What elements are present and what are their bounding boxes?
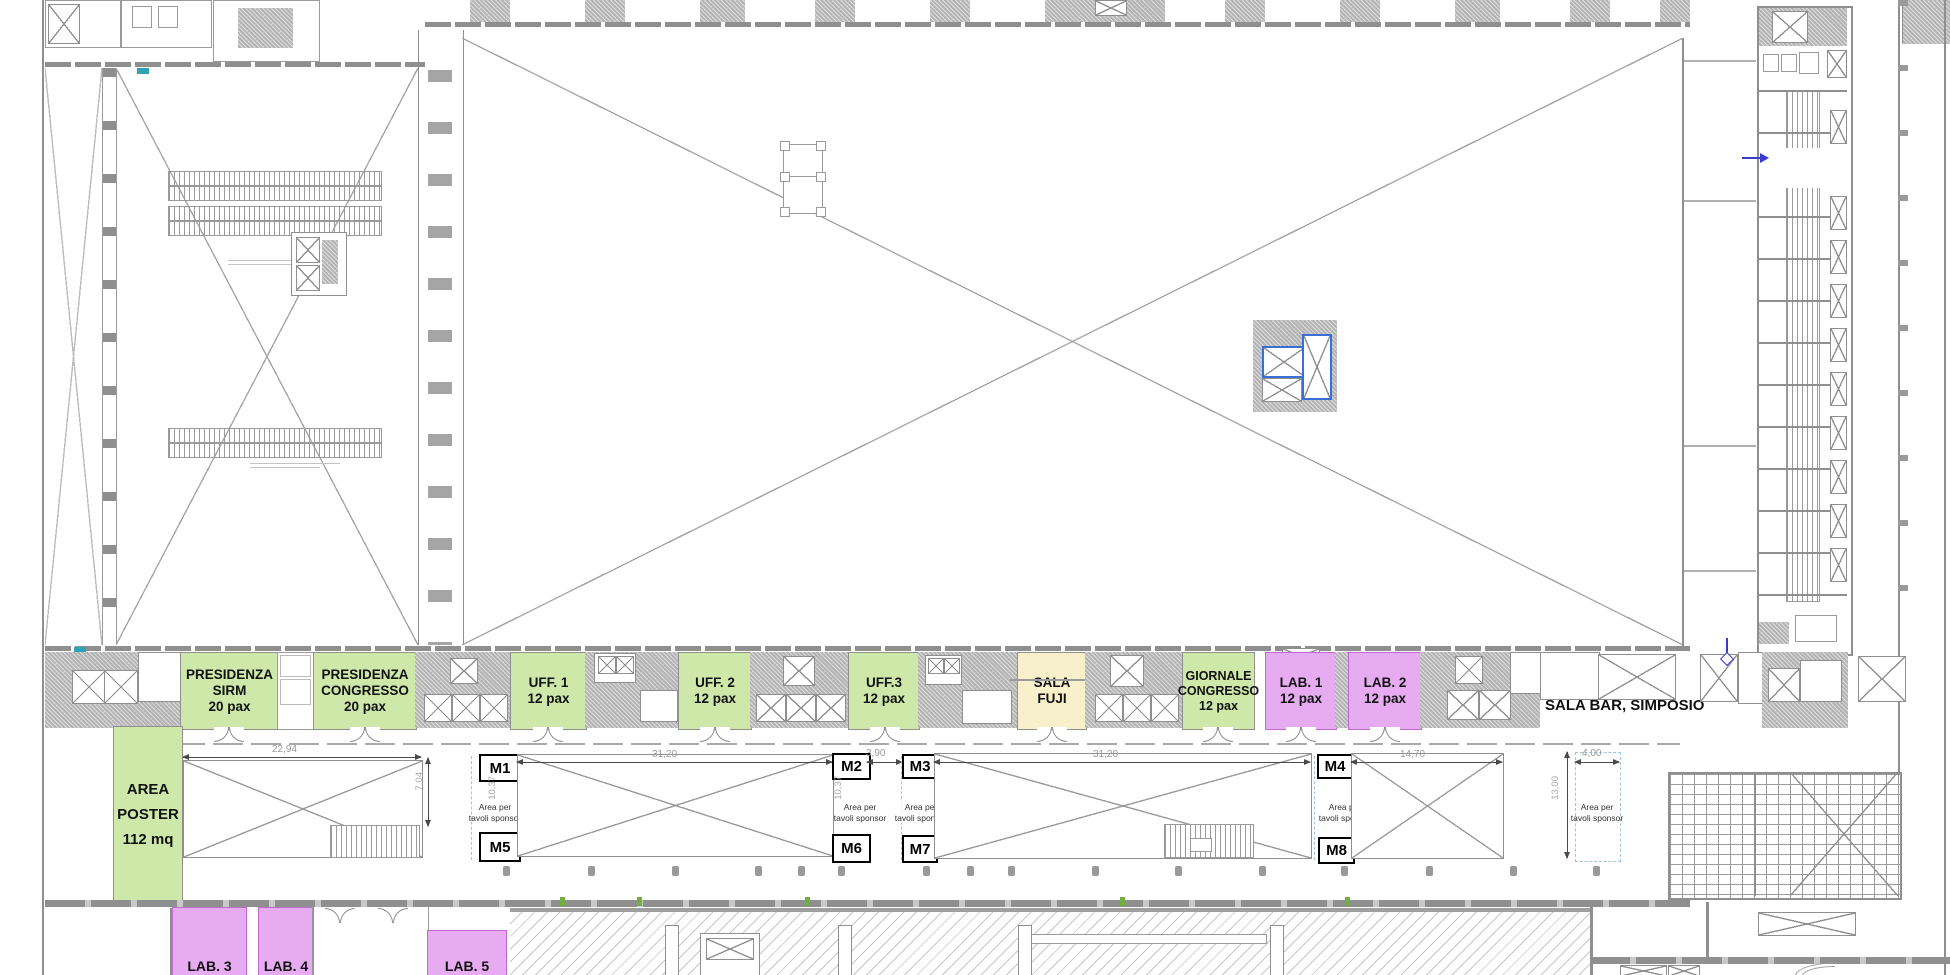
partition xyxy=(1684,570,1756,572)
dim-line xyxy=(1575,762,1619,763)
hatch-pier xyxy=(470,0,510,22)
room-giornale-congresso: GIORNALE CONGRESSO 12 pax xyxy=(1182,652,1255,730)
top-wall-left xyxy=(45,62,425,67)
shaft-xbox xyxy=(1827,50,1847,78)
shaft-xbox xyxy=(1830,460,1847,494)
room-lab-2: LAB. 2 12 pax xyxy=(1348,652,1422,730)
tiny-annotation xyxy=(250,467,320,468)
hatch-pier xyxy=(1660,0,1690,22)
shaft-xbox xyxy=(1830,416,1847,450)
shaft-xbox xyxy=(1095,0,1127,16)
escalator xyxy=(168,206,382,221)
left-outer-wall xyxy=(42,0,44,975)
corridor-wall xyxy=(175,743,1680,745)
central-hall xyxy=(462,38,1683,645)
floor-plan-canvas: PRESIDENZA SIRM 20 pax PRESIDENZA CONGRE… xyxy=(0,0,1950,975)
hatch-pier xyxy=(930,0,970,22)
shaft-xbox xyxy=(1151,694,1179,722)
hatch-pier xyxy=(1335,652,1348,728)
pillar xyxy=(1018,925,1032,975)
partition xyxy=(1684,60,1756,62)
escalator xyxy=(168,171,382,186)
bottom-wall-right xyxy=(1590,957,1950,964)
shaft-xbox xyxy=(756,694,786,722)
shaft-xbox xyxy=(296,265,320,291)
shaft-xbox xyxy=(480,694,508,722)
escalator xyxy=(168,221,382,236)
shaft-xbox xyxy=(1110,655,1144,687)
hatch-pier xyxy=(815,0,855,22)
fixture xyxy=(1799,52,1819,74)
green-tick xyxy=(1345,897,1350,906)
floor-dot xyxy=(503,866,510,876)
strip-room xyxy=(138,652,182,702)
fixture xyxy=(1763,54,1779,72)
dim-label: 22,94 xyxy=(272,744,297,755)
room-uff-1: UFF. 1 12 pax xyxy=(510,652,587,730)
room-uff-3: UFF.3 12 pax xyxy=(848,652,920,730)
fixture xyxy=(1781,54,1797,72)
shaft-xbox xyxy=(1830,504,1847,538)
strip-room xyxy=(1800,660,1842,702)
strip-room xyxy=(962,690,1012,724)
shaft-xbox xyxy=(1858,656,1906,702)
blue-arrow-line xyxy=(1742,157,1760,159)
shaft-xbox xyxy=(1768,668,1800,702)
shaft-xbox xyxy=(104,670,138,704)
dim-line xyxy=(428,758,429,826)
shaft-xbox xyxy=(452,694,480,722)
hatch-pier xyxy=(238,8,293,48)
floor-dot xyxy=(1008,866,1015,876)
column-band xyxy=(102,68,117,645)
shaft-xbox xyxy=(616,656,634,674)
shaft-xbox xyxy=(1598,654,1676,700)
bottom-left-corridor xyxy=(45,908,172,975)
area-poster: AREA POSTER 112 mq xyxy=(113,726,183,904)
shaft-xbox xyxy=(1455,656,1483,684)
strip-room xyxy=(1510,652,1542,694)
dim-line xyxy=(1351,762,1502,763)
selected-shaft-xbox[interactable] xyxy=(1302,334,1332,400)
grid-divider xyxy=(1754,772,1756,896)
floor-dot xyxy=(588,866,595,876)
room-presidenza-sirm: PRESIDENZA SIRM 20 pax xyxy=(180,652,279,730)
tiny-annotation xyxy=(250,463,340,464)
column xyxy=(816,207,826,217)
blue-arrow-icon xyxy=(1760,153,1769,163)
shaft-xbox xyxy=(816,694,846,722)
marker-m6: M6 xyxy=(832,834,871,863)
floor-dot xyxy=(967,866,974,876)
dim-label: 7,04 xyxy=(414,772,425,791)
hatch-pier xyxy=(1225,0,1265,22)
shaft-xbox xyxy=(1830,110,1847,144)
dim-line xyxy=(517,762,832,763)
floor-dot xyxy=(923,866,930,876)
expo-rect-2 xyxy=(517,754,834,857)
floor-dot xyxy=(1259,866,1266,876)
shaft-xbox xyxy=(1447,690,1479,720)
double-door xyxy=(700,728,730,742)
marker-m8: M8 xyxy=(1318,837,1355,864)
dim-label: 13,00 xyxy=(1550,776,1561,800)
shaft-xbox xyxy=(1095,694,1123,722)
shaft-xbox xyxy=(424,694,452,722)
shaft-xbox xyxy=(296,237,320,263)
room-uff-2: UFF. 2 12 pax xyxy=(678,652,752,730)
double-door xyxy=(350,728,380,742)
column xyxy=(816,172,826,182)
hatch-pier xyxy=(700,0,745,22)
column xyxy=(780,207,790,217)
strip-top-wall xyxy=(45,646,1690,651)
marker-m1: M1 xyxy=(479,754,521,782)
green-tick xyxy=(560,897,565,906)
room-sala-fuji: SALA FUJI xyxy=(1017,652,1087,730)
marker-m7: M7 xyxy=(902,835,938,863)
dim-label: 31,20 xyxy=(652,749,677,760)
floor-dot xyxy=(1175,866,1182,876)
partition-bar xyxy=(1030,934,1267,944)
floor-dot xyxy=(1593,866,1600,876)
strip-room xyxy=(1540,652,1600,700)
column xyxy=(780,172,790,182)
double-door xyxy=(325,908,355,922)
room-lab-5: LAB. 5 xyxy=(427,930,507,975)
bottom-room xyxy=(1795,615,1837,642)
bottom-wall xyxy=(45,900,1690,907)
column xyxy=(780,141,790,151)
stair-block xyxy=(330,825,420,858)
double-door xyxy=(1203,728,1233,742)
dim-label: 31,20 xyxy=(1093,749,1118,760)
shaft-xbox xyxy=(1830,548,1847,582)
wc-room xyxy=(280,679,311,705)
floor-dot xyxy=(1341,866,1348,876)
fixture xyxy=(132,6,152,28)
shaft-xbox xyxy=(1262,378,1302,402)
shaft-xbox xyxy=(1479,690,1511,720)
strip-room xyxy=(640,690,678,722)
marker-m5: M5 xyxy=(479,832,521,862)
shaft-xbox xyxy=(450,658,478,684)
selected-shaft-xbox[interactable] xyxy=(1262,346,1306,378)
dim-line xyxy=(934,762,1310,763)
partition xyxy=(1684,200,1756,202)
sponsor-area-label: Area per tavoli sponsor xyxy=(1564,802,1630,823)
floor-dot xyxy=(1092,866,1099,876)
escalator xyxy=(168,443,382,458)
hatch-pier xyxy=(1759,622,1789,644)
top-right-corner-block xyxy=(1902,0,1950,44)
floor-dot xyxy=(798,866,805,876)
floor-dot xyxy=(1426,866,1433,876)
room-presidenza-congresso: PRESIDENZA CONGRESSO 20 pax xyxy=(313,652,417,730)
green-tick xyxy=(637,897,642,906)
right-band-ticks xyxy=(1898,0,1908,650)
left-strip-hall xyxy=(45,68,102,645)
double-door xyxy=(1037,728,1067,742)
shaft-xbox xyxy=(1830,372,1847,406)
floor-dot xyxy=(838,866,845,876)
escalator xyxy=(168,428,382,443)
strip-room xyxy=(1738,652,1764,704)
shaft-xbox xyxy=(1830,328,1847,362)
shaft-xbox xyxy=(1830,196,1847,230)
shaft-xbox xyxy=(1620,965,1667,975)
double-door xyxy=(214,728,244,742)
double-door xyxy=(533,728,563,742)
corridor-label: SALA BAR, SIMPOSIO xyxy=(1545,697,1704,714)
dim-label: 3,90 xyxy=(866,748,885,759)
shaft-xbox xyxy=(783,656,815,686)
wall xyxy=(1590,902,1593,975)
dim-label: 4,00 xyxy=(1582,748,1601,759)
dim-line xyxy=(183,757,421,758)
left-hall xyxy=(116,68,418,645)
dim-label: 10,37 xyxy=(833,776,844,800)
wall xyxy=(1706,902,1709,957)
grid-block-diagonal xyxy=(1790,772,1898,896)
top-wall-central xyxy=(425,22,1690,27)
expo-rect-3 xyxy=(934,753,1312,859)
dim-label: 14,70 xyxy=(1400,749,1425,760)
floor-dot xyxy=(1510,866,1517,876)
double-door xyxy=(1286,728,1316,742)
floor-dot xyxy=(672,866,679,876)
shaft-xbox xyxy=(1830,240,1847,274)
double-door xyxy=(1370,728,1400,742)
expo-rect-4 xyxy=(1351,753,1504,859)
pillar xyxy=(1270,925,1284,975)
shaft-xbox xyxy=(1830,284,1847,318)
shaft-xbox xyxy=(944,658,960,674)
shaft-xbox xyxy=(928,658,944,674)
shaft-xbox xyxy=(72,670,106,704)
hatch-pier xyxy=(1340,0,1380,22)
hatch-pier xyxy=(1455,0,1500,22)
shaft-xbox xyxy=(1700,654,1738,702)
green-tick xyxy=(805,897,810,906)
marker-m4: M4 xyxy=(1317,754,1353,779)
floor-dot xyxy=(755,866,762,876)
double-door xyxy=(870,728,900,742)
room-lab-1: LAB. 1 12 pax xyxy=(1265,652,1337,730)
stair-landing xyxy=(1190,838,1212,852)
pillar xyxy=(665,925,679,975)
hatch-pier xyxy=(322,240,338,284)
dim-label: 10,37 xyxy=(487,776,498,800)
sponsor-area-label: Area per tavoli sponsor xyxy=(827,802,893,823)
hatch-pier xyxy=(1570,0,1610,22)
shaft-xbox xyxy=(1772,11,1808,43)
room-lab-4: LAB. 4 xyxy=(258,907,314,975)
hall-right-wall xyxy=(1682,38,1684,648)
shaft-xbox xyxy=(706,938,754,960)
partition xyxy=(1684,445,1756,447)
wc-room xyxy=(280,655,311,677)
shaft-xbox xyxy=(598,656,616,674)
shaft-xbox xyxy=(1123,694,1151,722)
stack-landing xyxy=(1759,148,1847,188)
shaft-xbox xyxy=(1668,965,1700,975)
room-lab-3: LAB. 3 xyxy=(172,907,247,975)
pillar xyxy=(838,925,852,975)
green-tick xyxy=(1120,897,1125,906)
shaft-xbox xyxy=(786,694,816,722)
leader-line xyxy=(1010,679,1090,681)
fixture xyxy=(158,6,178,28)
column xyxy=(816,141,826,151)
shaft-xbox xyxy=(48,4,80,44)
escalator xyxy=(168,186,382,201)
dim-line xyxy=(867,762,902,763)
separator-ticks xyxy=(428,30,452,645)
hatch-pier xyxy=(585,0,625,22)
right-outer-wall xyxy=(1944,0,1946,975)
double-door xyxy=(378,908,408,922)
shaft-xbox xyxy=(1758,912,1856,936)
